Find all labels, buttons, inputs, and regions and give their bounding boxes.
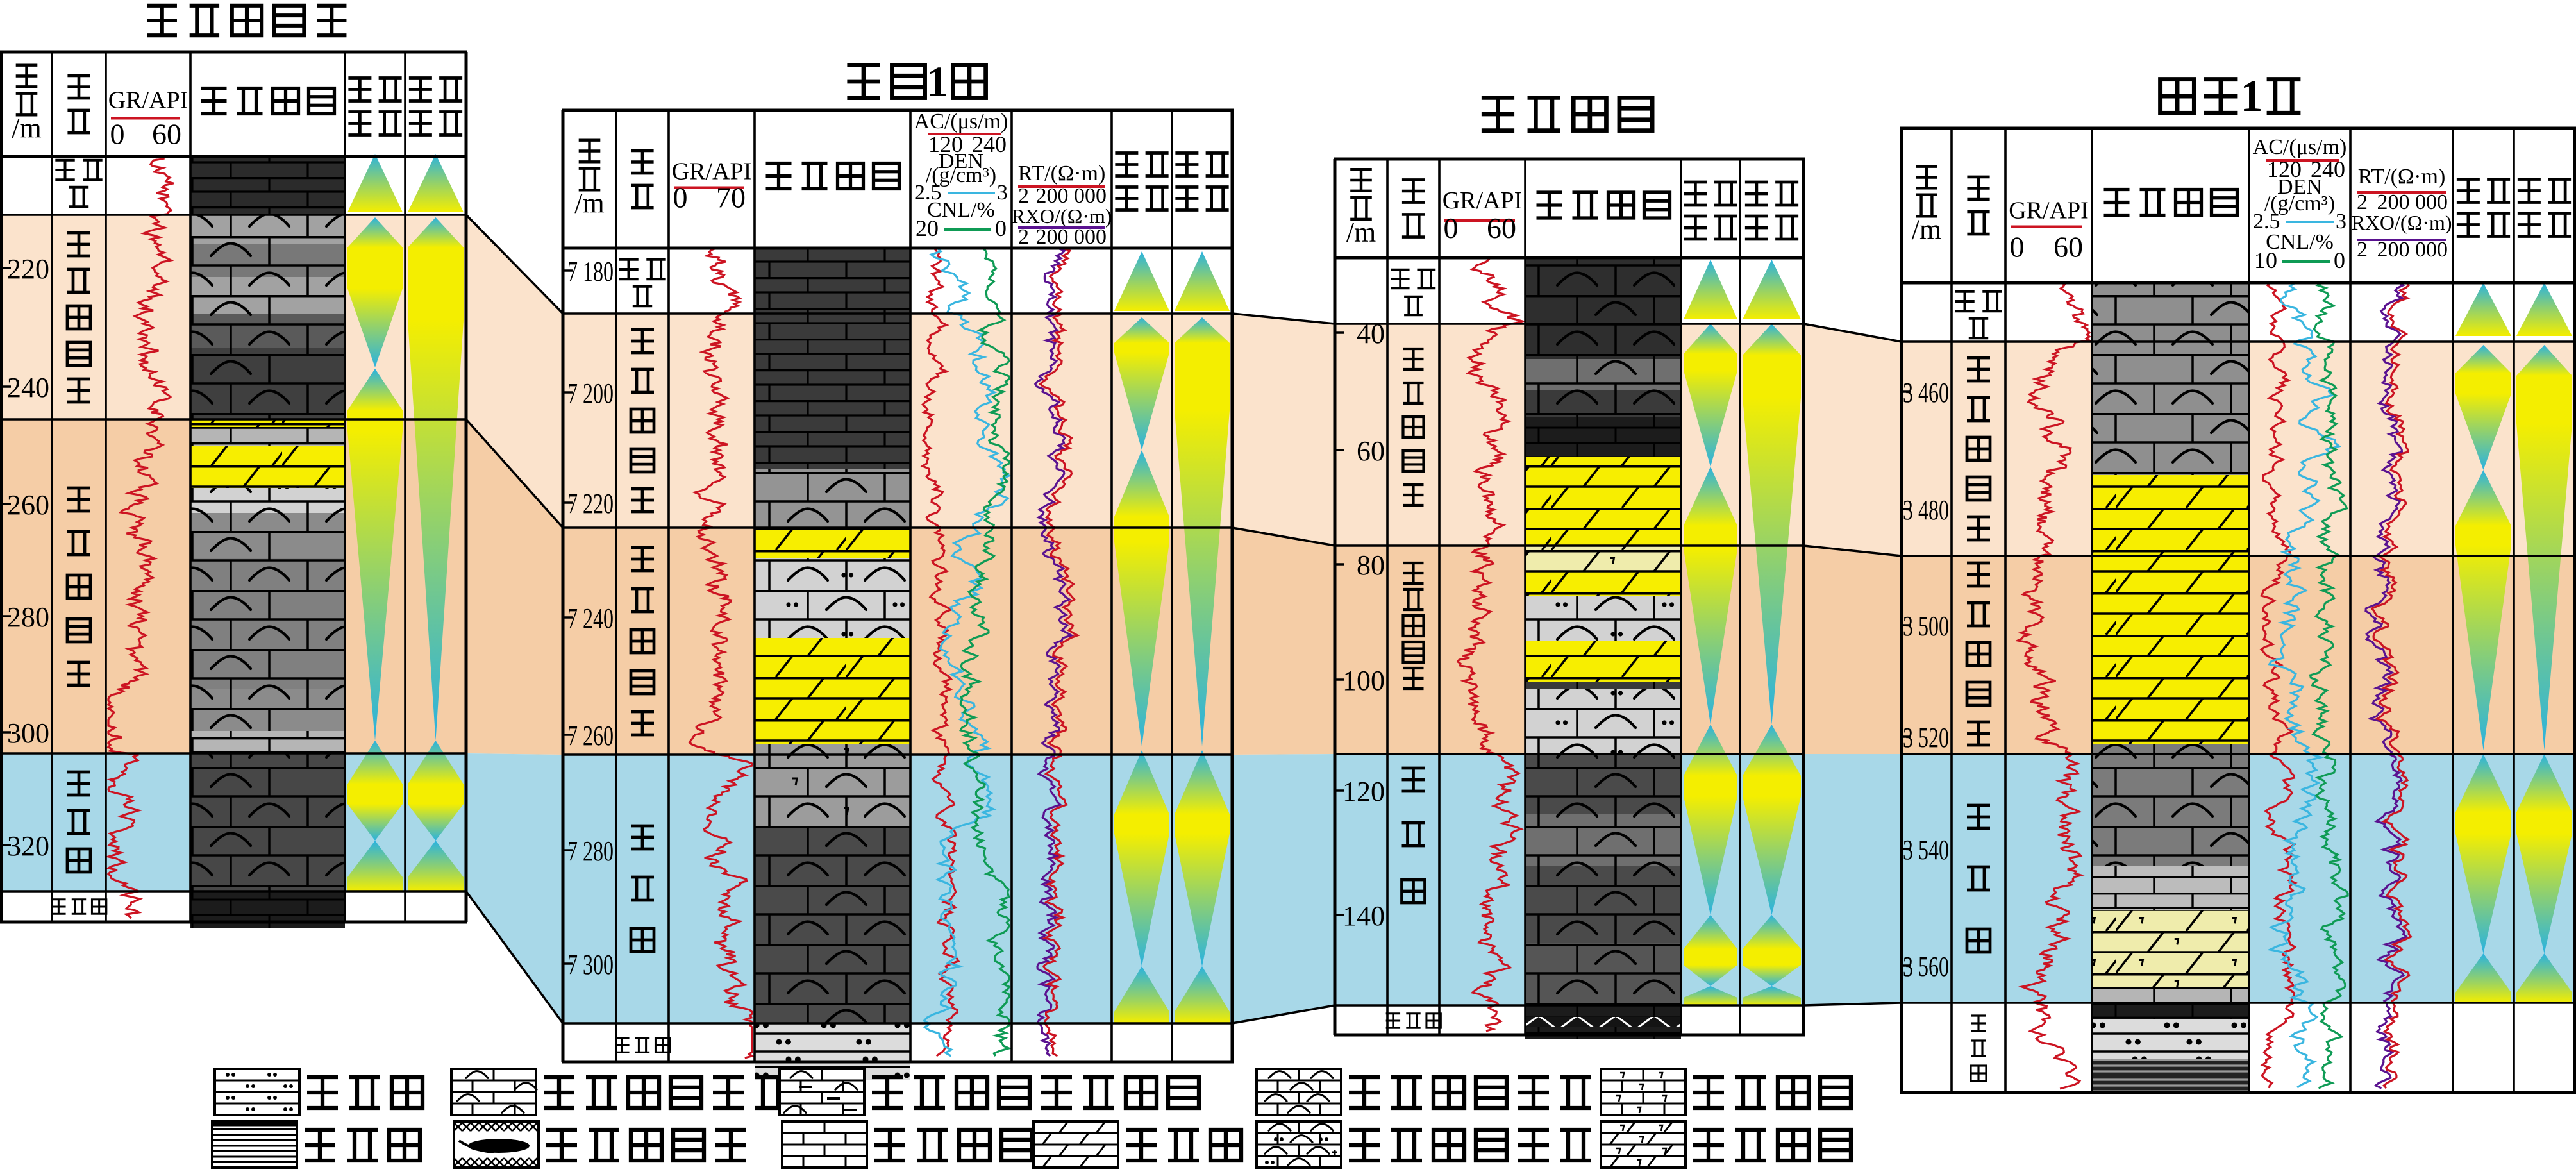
svg-text:60: 60 — [1357, 435, 1385, 467]
svg-text:200 000: 200 000 — [2377, 238, 2448, 262]
svg-text:40: 40 — [1357, 318, 1385, 349]
svg-text:RXO/(Ω·m): RXO/(Ω·m) — [2351, 211, 2452, 234]
svg-text:3: 3 — [997, 181, 1008, 205]
svg-text:GR/API: GR/API — [2009, 197, 2089, 224]
svg-text:3 480: 3 480 — [1903, 494, 1949, 526]
svg-text:/m: /m — [1346, 217, 1376, 248]
svg-text:GR/API: GR/API — [1443, 187, 1523, 214]
svg-text:/m: /m — [12, 113, 41, 144]
svg-text:240: 240 — [7, 372, 49, 403]
svg-text:7 300: 7 300 — [567, 949, 614, 980]
svg-text:/m: /m — [574, 188, 604, 219]
svg-text:0: 0 — [2010, 231, 2025, 264]
svg-text:2: 2 — [1018, 225, 1029, 249]
svg-text:7 240: 7 240 — [567, 603, 614, 634]
svg-text:0: 0 — [2334, 247, 2345, 273]
svg-text:60: 60 — [152, 118, 181, 151]
svg-text:60: 60 — [1487, 212, 1516, 244]
svg-text:0: 0 — [110, 118, 125, 151]
svg-text:100: 100 — [1342, 665, 1385, 696]
svg-text:RXO/(Ω·m): RXO/(Ω·m) — [1011, 205, 1112, 228]
svg-text:GR/API: GR/API — [108, 87, 188, 114]
svg-text:0: 0 — [1444, 212, 1459, 244]
svg-text:3 520: 3 520 — [1903, 722, 1949, 753]
svg-text:7 220: 7 220 — [567, 488, 614, 519]
svg-text:260: 260 — [7, 489, 49, 521]
svg-text:80: 80 — [1357, 549, 1385, 581]
svg-text:300: 300 — [7, 717, 49, 749]
svg-text:/m: /m — [1912, 214, 1941, 246]
svg-text:20: 20 — [916, 215, 939, 241]
svg-text:7 180: 7 180 — [567, 256, 614, 287]
svg-text:7 200: 7 200 — [567, 378, 614, 409]
svg-text:3 500: 3 500 — [1903, 610, 1949, 642]
svg-text:220: 220 — [7, 253, 49, 285]
svg-text:3 460: 3 460 — [1903, 377, 1949, 408]
svg-text:2: 2 — [2357, 238, 2368, 262]
svg-text:60: 60 — [2053, 231, 2083, 264]
svg-text:140: 140 — [1342, 900, 1385, 932]
svg-text:7 280: 7 280 — [567, 835, 614, 867]
svg-text:0: 0 — [995, 215, 1007, 241]
svg-text:7 260: 7 260 — [567, 720, 614, 751]
svg-text:AC/(μs/m): AC/(μs/m) — [914, 110, 1008, 133]
svg-text:10: 10 — [2254, 247, 2277, 273]
svg-text:120: 120 — [1342, 776, 1385, 807]
svg-text:3 540: 3 540 — [1903, 834, 1949, 866]
svg-text:1: 1 — [926, 57, 948, 106]
svg-text:0: 0 — [673, 181, 688, 214]
svg-text:RT/(Ω·m): RT/(Ω·m) — [2358, 165, 2446, 189]
svg-text:200 000: 200 000 — [1036, 225, 1107, 249]
svg-text:1: 1 — [2241, 72, 2263, 121]
svg-text:AC/(μs/m): AC/(μs/m) — [2253, 135, 2347, 159]
svg-text:70: 70 — [716, 181, 746, 214]
svg-text:RT/(Ω·m): RT/(Ω·m) — [1018, 162, 1106, 185]
svg-text:3: 3 — [2336, 210, 2346, 233]
svg-text:3 560: 3 560 — [1903, 951, 1949, 982]
svg-text:280: 280 — [7, 601, 49, 633]
svg-text:320: 320 — [7, 830, 49, 862]
